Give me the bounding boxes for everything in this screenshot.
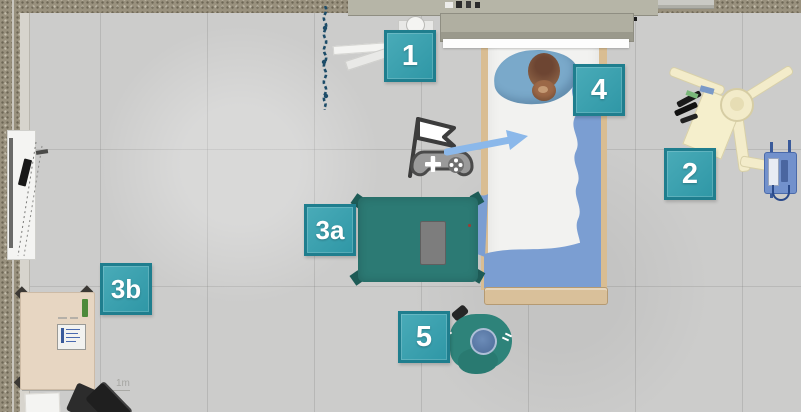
machine-hub-center (730, 97, 744, 111)
clipboard-text-line (66, 341, 76, 342)
pump-syringe (781, 160, 788, 182)
clipboard-text-line (66, 329, 80, 330)
marker-2-label: 2 (682, 158, 698, 191)
clipboard-text-line (66, 337, 80, 338)
headwall-light-strip (443, 39, 629, 48)
clipboard-blue-strip (61, 328, 64, 343)
marker-3a[interactable]: 3a (304, 204, 356, 256)
instrument-table (358, 197, 478, 282)
marker-2[interactable]: 2 (664, 148, 716, 200)
bed-blanket (468, 84, 608, 304)
desk-paper-slip (58, 317, 67, 319)
table-red-dot (468, 224, 471, 227)
desk-paper-slip (70, 317, 78, 319)
clipboard-text-line (66, 333, 78, 334)
room-scene: 1m (0, 0, 801, 412)
gas-outlet (456, 1, 462, 8)
headwall-unit (440, 13, 634, 42)
marker-3b[interactable]: 3b (100, 263, 152, 315)
marker-3b-label: 3b (111, 274, 141, 305)
marker-5[interactable]: 5 (398, 311, 450, 363)
marker-3a-label: 3a (316, 215, 345, 246)
marker-4[interactable]: 4 (573, 64, 625, 116)
bed-footboard (484, 287, 608, 305)
pump-screen (768, 158, 779, 186)
marker-1[interactable]: 1 (384, 30, 436, 82)
headwall-socket (445, 2, 453, 8)
gas-outlet (466, 1, 471, 8)
marker-1-label: 1 (402, 40, 418, 73)
desk-green-item (82, 299, 88, 317)
wall-rail (656, 0, 714, 9)
paper-sheet (25, 392, 61, 412)
instrument-tray (420, 221, 446, 265)
stand-dotted-outline (10, 138, 46, 260)
gas-outlet (475, 2, 480, 8)
scale-label: 1m (116, 378, 130, 389)
privacy-curtain (316, 6, 336, 110)
marker-5-label: 5 (416, 321, 432, 354)
arrow-right-icon (444, 126, 530, 158)
clinician-cap (470, 328, 497, 355)
teddy-bear-snout (538, 86, 548, 93)
marker-4-label: 4 (591, 74, 607, 107)
